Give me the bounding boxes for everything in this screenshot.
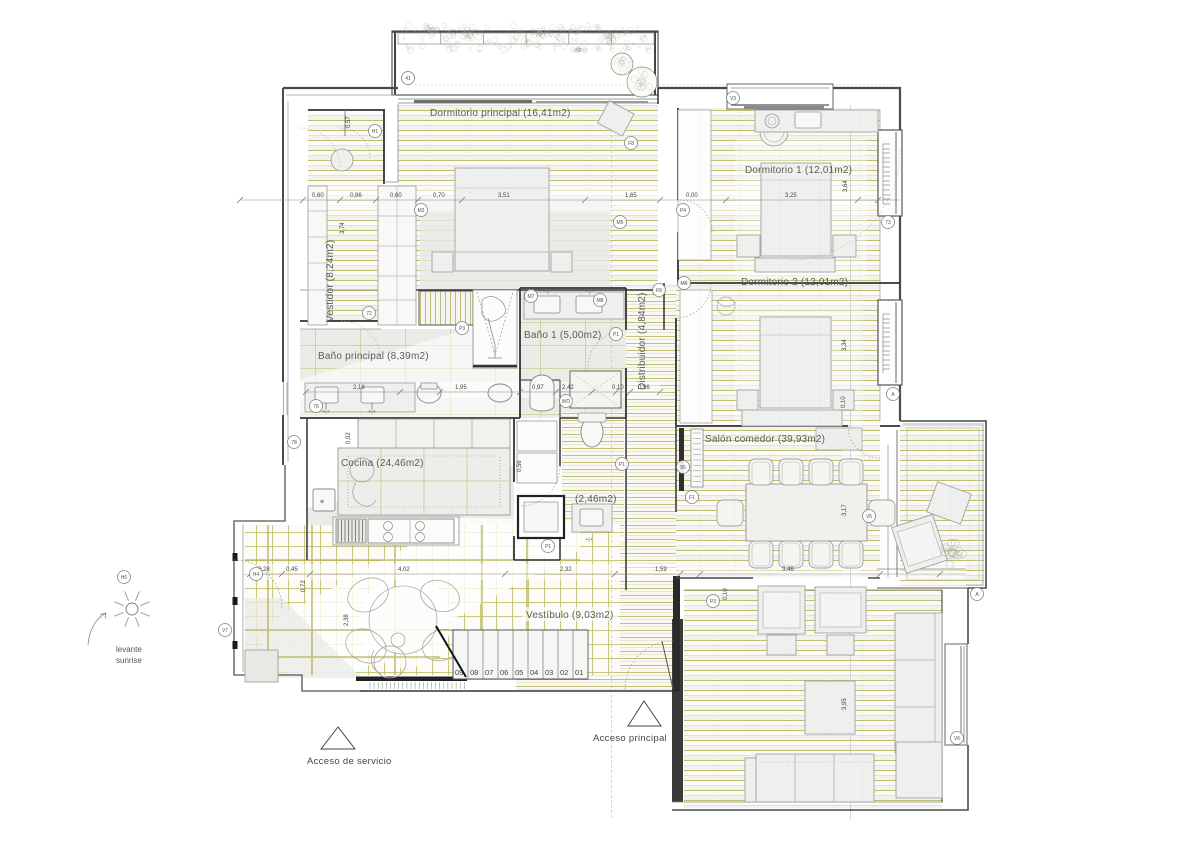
svg-text:Cocina (24,46m2): Cocina (24,46m2) [341,458,424,469]
svg-text:3,46: 3,46 [782,567,794,573]
svg-text:Baño 1 (5,00m2): Baño 1 (5,00m2) [524,330,602,341]
svg-text:Vestidor (8,24m2): Vestidor (8,24m2) [325,240,336,322]
svg-text:0,97: 0,97 [532,385,544,391]
svg-text:Dormitorio principal (16,41m2): Dormitorio principal (16,41m2) [430,108,571,119]
svg-text:3,25: 3,25 [785,193,797,199]
svg-text:06: 06 [500,668,508,677]
svg-text:V7: V7 [222,628,228,634]
svg-text:P1: P1 [545,544,551,550]
svg-text:P3: P3 [459,326,465,332]
svg-text:07: 07 [485,668,493,677]
svg-text:V3: V3 [730,96,736,102]
svg-text:0,10: 0,10 [841,396,847,408]
svg-text:P3: P3 [710,599,716,605]
svg-text:76: 76 [313,404,319,410]
svg-text:05: 05 [515,668,523,677]
svg-text:78: 78 [291,440,297,446]
svg-text:1,59: 1,59 [655,567,667,573]
svg-text:+|+: +|+ [585,289,594,295]
svg-text:2,16: 2,16 [353,385,365,391]
svg-text:0,60: 0,60 [312,193,324,199]
svg-text:0,70: 0,70 [433,193,445,199]
svg-text:V5: V5 [866,514,872,520]
svg-text:Acceso de servicio: Acceso de servicio [307,756,392,767]
svg-text:H4: H4 [253,572,260,578]
svg-text:73: 73 [885,220,891,226]
svg-text:1,65: 1,65 [625,193,637,199]
svg-text:Vestíbulo (9,03m2): Vestíbulo (9,03m2) [526,610,614,621]
svg-text:4,02: 4,02 [398,567,410,573]
svg-text:03: 03 [545,668,553,677]
svg-text:levante: levante [116,645,142,654]
svg-text:3,51: 3,51 [498,193,510,199]
svg-text:H1: H1 [372,129,379,135]
svg-text:02: 02 [560,668,568,677]
svg-text:Baño principal (8,39m2): Baño principal (8,39m2) [318,351,429,362]
svg-text:0,00: 0,00 [686,193,698,199]
svg-text:0,10: 0,10 [723,588,729,600]
svg-text:F8: F8 [628,141,634,147]
svg-text:41: 41 [405,76,411,82]
svg-text:0,60: 0,60 [390,193,402,199]
svg-text:F8: F8 [656,288,662,294]
svg-text:1,95: 1,95 [455,385,467,391]
svg-text:0,92: 0,92 [346,432,352,444]
svg-text:0,72: 0,72 [301,580,307,592]
svg-text:H6: H6 [121,575,128,581]
svg-text:+|+: +|+ [368,409,376,415]
svg-text:3,74: 3,74 [340,222,346,234]
svg-text:P1: P1 [619,462,625,468]
svg-text:M3: M3 [418,208,425,214]
svg-text:Salón comedor (39,93m2): Salón comedor (39,93m2) [705,434,825,445]
svg-text:3,17: 3,17 [842,504,848,516]
svg-text:M5: M5 [617,220,624,226]
svg-text:04: 04 [530,668,538,677]
svg-text:0,86: 0,86 [350,193,362,199]
svg-text:WO: WO [562,399,571,405]
svg-text:F1: F1 [689,495,695,501]
svg-text:01: 01 [575,668,583,677]
svg-text:95: 95 [680,465,686,471]
svg-text:08: 08 [470,668,478,677]
svg-text:+|+: +|+ [585,537,593,543]
svg-text:0,57: 0,57 [346,116,352,128]
svg-text:+|+: +|+ [322,409,330,415]
svg-text:Dormitorio 2 (12,01m2): Dormitorio 2 (12,01m2) [741,277,848,288]
svg-text:V6: V6 [954,736,960,742]
svg-text:0,10: 0,10 [612,385,624,391]
svg-text:Acceso principal: Acceso principal [593,733,667,744]
svg-text:M8: M8 [597,298,604,304]
svg-text:2,38: 2,38 [344,614,350,626]
svg-text:Dormitorio 1 (12,01m2): Dormitorio 1 (12,01m2) [745,165,852,176]
svg-text:72: 72 [366,311,372,317]
svg-text:3,64: 3,64 [843,180,849,192]
svg-text:3,34: 3,34 [842,339,848,351]
svg-text:P1: P1 [613,332,619,338]
svg-text:2,32: 2,32 [560,567,572,573]
svg-text:(2,46m2): (2,46m2) [575,494,617,505]
svg-text:0,56: 0,56 [517,460,523,472]
svg-text:sunrise: sunrise [116,656,142,665]
svg-text:Distribuidor (4,84m2): Distribuidor (4,84m2) [637,292,648,390]
svg-text:+|+: +|+ [543,289,552,295]
svg-text:P4: P4 [680,208,686,214]
svg-text:M6: M6 [681,281,688,287]
svg-text:0,45: 0,45 [286,567,298,573]
svg-text:3,95: 3,95 [842,698,848,710]
svg-text:M7: M7 [528,294,535,300]
svg-text:2,42: 2,42 [562,385,574,391]
svg-text:⊗: ⊗ [320,499,324,505]
